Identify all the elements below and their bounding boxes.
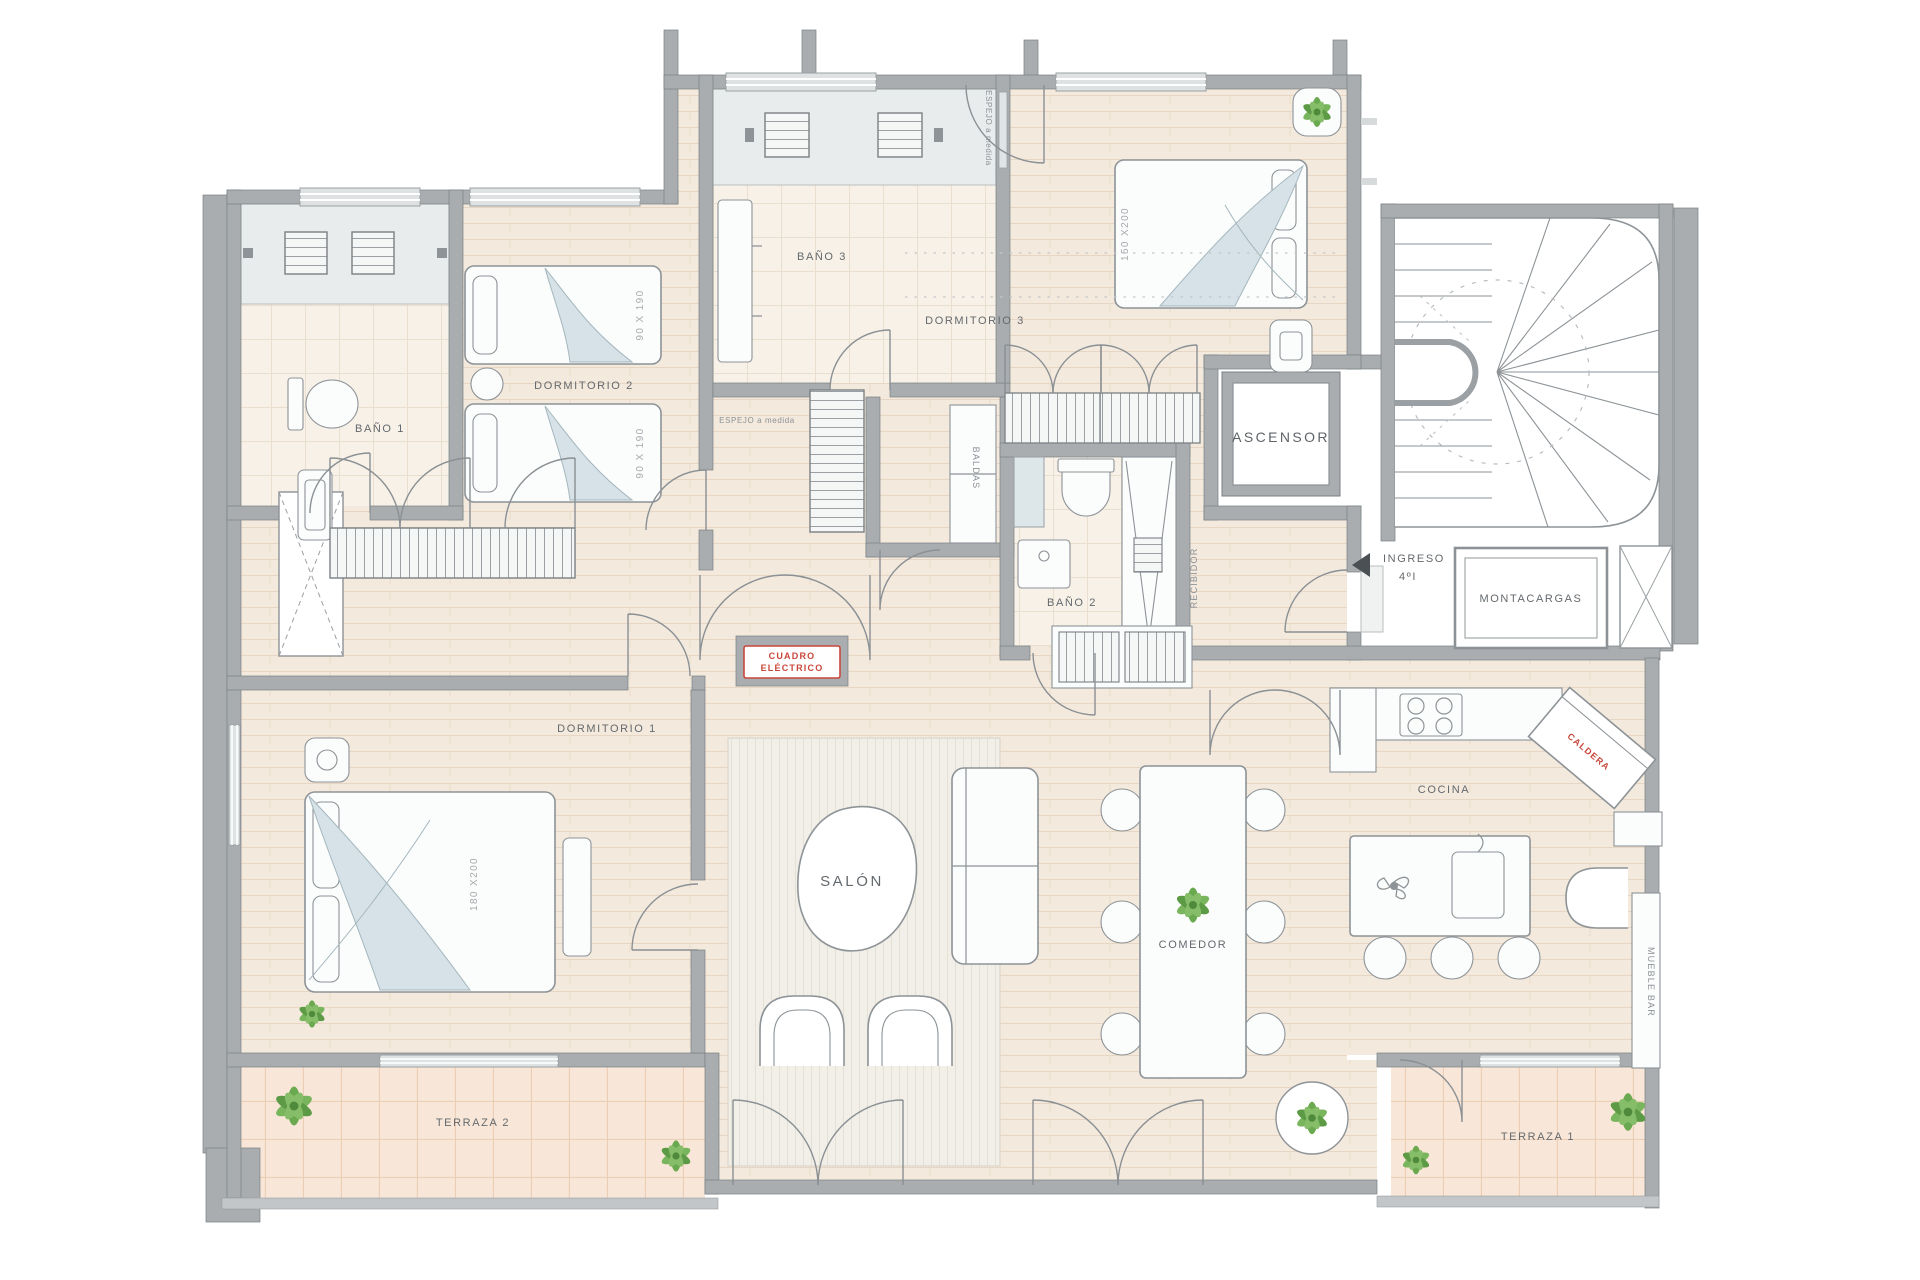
window-dorm2 [470,188,640,206]
shaft-right [1620,546,1672,648]
bano3-label: BAÑO 3 [797,250,847,263]
dresser-drawers [1059,632,1119,682]
ingreso-label-2: 4ºI [1399,571,1417,583]
stool [1364,937,1406,979]
wall-left [227,190,241,1198]
shower-head-icon [934,128,943,142]
bed-size-label: 150 X200 [1120,207,1131,261]
wall-spine-upper [699,75,713,470]
pillow [313,896,339,982]
mueble-bar-label: MUEBLE BAR [1646,947,1656,1017]
armchair [1566,868,1628,928]
dining-chair [1243,901,1285,943]
window-bano1 [300,188,420,206]
shower-grille-icon [285,232,327,274]
salon-label: SALÓN [820,873,884,890]
wardrobe-slatted [1005,393,1100,443]
cuadro-label-2: ELÉCTRICO [761,663,824,673]
dining-chair [1101,901,1143,943]
espejo-label: ESPEJO a medida [719,416,795,425]
window-dorm1-left [229,725,240,845]
wall-bano3-bottom-b [890,383,1010,397]
wall-dorm1-top-b [692,676,705,690]
wall-bano2-bottom-a [1000,646,1030,660]
window-bano3 [726,73,876,91]
terraza1-label: TERRAZA 1 [1501,1131,1575,1143]
shower-head-icon [437,248,447,258]
wall-dorm1-right-b [691,950,705,1053]
wall-dorm1-top-a [227,676,628,690]
nightstand-lamp [317,750,337,770]
shower-head-icon [243,248,253,258]
wall-stair-left [1381,204,1395,541]
corridor-closet [330,528,575,578]
bano1-shower-zone [241,204,449,304]
dormitorio2-label: DORMITORIO 2 [534,380,634,392]
armchair [868,996,952,1066]
terraza2-floor [241,1067,705,1198]
window-dorm1-terraza [380,1055,558,1067]
sill-tick-1 [1361,118,1377,125]
shower-head-icon [745,128,754,142]
wall-dorm1-right-a [691,690,705,880]
side-table [1614,812,1662,846]
dormitorio1-label: DORMITORIO 1 [557,723,657,735]
wall-bano2-top [1000,443,1190,457]
bano1-label: BAÑO 1 [355,422,405,435]
tall-slatted-unit [810,390,864,532]
nightstand-lamp [1280,332,1302,360]
toilet-icon [306,380,358,428]
wall-lift-bottom [1204,506,1361,520]
shower-grille-icon [1134,538,1162,572]
dining-chair [1101,789,1143,831]
wall-lift-left [1204,355,1218,520]
bed-bench [563,838,591,956]
lift-montacargas: MONTACARGAS [1455,548,1607,648]
espejo-label-vertical: ESPEJO a medida [984,90,993,166]
sill-tick-2 [1361,178,1377,185]
round-nightstand [471,368,503,400]
vanity-counter [718,200,752,362]
wall-stair-top [1381,204,1673,218]
dining-chair [1243,1013,1285,1055]
montacargas-label: MONTACARGAS [1480,593,1583,605]
wall-stub-1 [802,30,816,78]
window-cocina-terraza [1480,1055,1620,1067]
hatch-left [203,195,229,1153]
wall-right-upper [1347,75,1361,369]
kitchen-tall-unit [1330,688,1376,772]
stool [1431,937,1473,979]
terraza2-label: TERRAZA 2 [436,1117,510,1129]
wall-dressing-left [866,397,880,557]
wall-bottom-center [705,1180,1377,1194]
dining-chair [1101,1013,1143,1055]
shower-grille-icon [765,113,809,157]
window-dorm3 [1056,73,1206,91]
wall-stub-2 [1024,40,1038,78]
comedor-label: COMEDOR [1159,939,1228,951]
plant-icon [1293,88,1341,136]
armchair [760,996,844,1066]
pillow [1272,238,1296,298]
recibidor-label: RECIBIDOR [1189,548,1199,609]
dormitorio3-label: DORMITORIO 3 [925,315,1025,327]
wall-bano1-dorm2 [449,190,463,520]
ingreso-label-1: INGRESO [1383,553,1445,565]
bano2-label: BAÑO 2 [1047,596,1097,609]
ascensor-label: ASCENSOR [1232,429,1330,445]
pillow [473,414,497,492]
dresser-drawers [1125,632,1185,682]
stool [1498,937,1540,979]
shower-grille-icon [352,232,394,274]
wall-stub-3 [1333,40,1347,78]
hatch-right [1674,208,1698,644]
terraza1-parapet [1377,1196,1659,1207]
wall-bano1-bottom-b [370,506,463,520]
shelf [1014,457,1044,527]
wall-spine-lower [699,530,713,570]
bed-size-label: 90 X 190 [635,427,646,478]
bed-size-label: 180 X200 [469,857,480,911]
toilet-tank [1058,459,1114,472]
floor-plan-page: ASCENSOR MONTACARGAS [0,0,1920,1280]
stair-void [1395,342,1475,403]
wall-salon-left-low [705,1053,719,1194]
floor-plan-drawing: ASCENSOR MONTACARGAS [0,0,1920,1280]
cuadro-label-1: CUADRO [769,651,816,661]
toilet-tank [288,378,303,430]
bano3-shower-zone [713,89,996,185]
bed-size-label: 90 X 190 [635,289,646,340]
shower-grille-icon [878,113,922,157]
cocina-label: COCINA [1418,784,1470,796]
pillow [473,276,497,354]
baldas-label: BALDAS [971,447,981,490]
mirror [999,92,1007,168]
wardrobe-slatted [1100,393,1200,443]
entry-step [1361,566,1383,632]
island-sink [1452,852,1504,918]
cuadro-electrico: CUADRO ELÉCTRICO [744,646,840,678]
lift-ascensor: ASCENSOR [1222,372,1340,496]
dining-chair [1243,789,1285,831]
sink-tap [1039,551,1049,561]
sink-icon [1018,540,1070,588]
comedor-dresser [1052,626,1192,688]
terraza2-parapet [222,1198,718,1209]
wall-step-up [664,30,678,204]
